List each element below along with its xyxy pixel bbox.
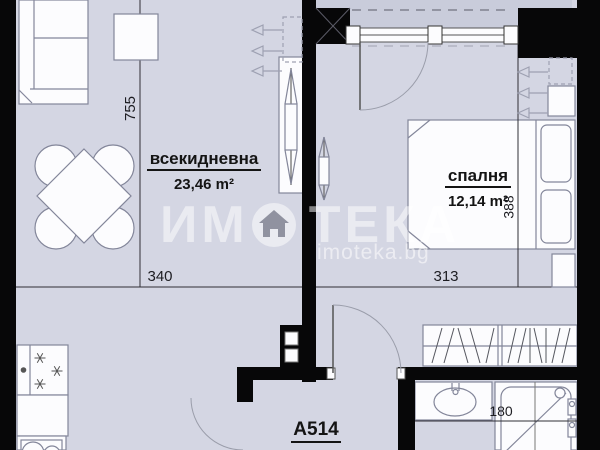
nightstand bbox=[548, 86, 575, 116]
window-mullion bbox=[346, 26, 360, 44]
nightstand bbox=[552, 254, 575, 287]
wall-bedroom-bottom bbox=[398, 367, 577, 380]
dimension-340: 340 bbox=[140, 269, 180, 284]
wall-hall-top bbox=[237, 367, 333, 380]
living-room-label: всекидневна bbox=[138, 150, 270, 171]
wall-central bbox=[302, 0, 316, 382]
sofa bbox=[19, 0, 88, 104]
dining-set bbox=[35, 145, 134, 249]
pillow bbox=[541, 125, 571, 182]
side-table bbox=[114, 14, 158, 60]
watermark-website: imoteka.bg bbox=[317, 241, 430, 265]
unit-number: A514 bbox=[284, 420, 348, 443]
dimension-180: 180 bbox=[481, 404, 521, 418]
kitchen-counter bbox=[17, 395, 68, 436]
window-mullion bbox=[504, 26, 518, 44]
dimension-388: 388 bbox=[499, 189, 519, 225]
window-mullion bbox=[428, 26, 442, 44]
radiator-living bbox=[279, 57, 303, 193]
balcony-floor-corner bbox=[516, 0, 572, 8]
door-jamb bbox=[327, 368, 335, 379]
wall-bathroom-left bbox=[398, 380, 415, 450]
wardrobe bbox=[423, 325, 577, 366]
wall-stub bbox=[237, 380, 253, 402]
pillar-top-right bbox=[518, 8, 577, 58]
floor-plan: всекидневна 23,46 m² спалня 12,14 m² A51… bbox=[0, 0, 600, 450]
dimension-755: 755 bbox=[120, 86, 142, 130]
bedroom-label: спалня bbox=[430, 167, 526, 188]
wall-right bbox=[577, 0, 600, 450]
kitchen-units bbox=[17, 345, 68, 450]
shaft-duct bbox=[285, 332, 298, 345]
dimension-313: 313 bbox=[426, 269, 466, 284]
wall-left bbox=[0, 0, 16, 450]
shaft-duct bbox=[285, 349, 298, 362]
living-room-area: 23,46 m² bbox=[138, 177, 270, 192]
house-in-circle-icon bbox=[251, 202, 297, 248]
pillow bbox=[541, 190, 571, 243]
